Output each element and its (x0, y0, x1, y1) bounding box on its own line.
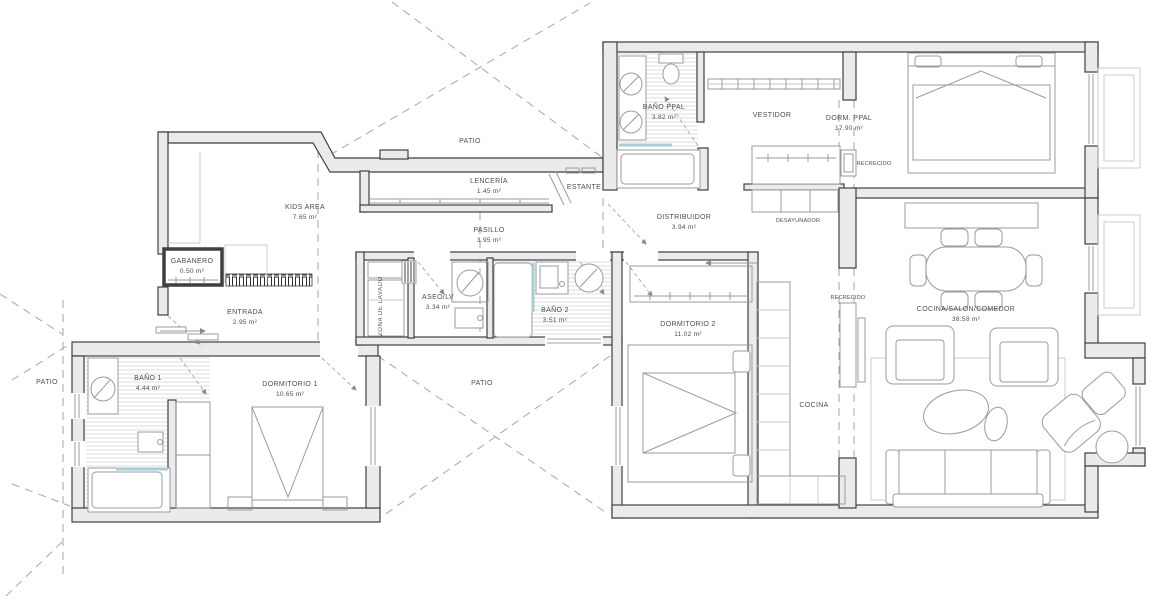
room-name: DORMITORIO 2 (660, 320, 715, 330)
vestidor-wardrobes (708, 79, 840, 212)
room-label-recrecido-dorm: RECRECIDO (857, 161, 892, 169)
room-label-dormitorio-2: DORMITORIO 2 11.02 m² (660, 320, 715, 340)
dorm-ppal-furniture (841, 53, 1055, 176)
room-name: PATIO (471, 379, 493, 389)
balconies (1098, 68, 1140, 315)
room-area: 3.82 m² (643, 113, 685, 122)
room-label-bano-1: BAÑO 1 4.44 m² (134, 374, 162, 394)
room-label-estante: ESTANTE (567, 183, 601, 193)
room-name: GABANERO (171, 257, 213, 267)
room-area: 3.51 m² (541, 316, 569, 325)
room-label-patio-left: PATIO (36, 378, 58, 388)
room-name: COCINA/SALON/COMEDOR (917, 305, 1015, 315)
room-name: COCINA (799, 401, 828, 411)
room-label-patio-top: PATIO (459, 137, 481, 147)
room-area: 1.45 m² (470, 187, 508, 196)
room-name: PASILLO (473, 226, 504, 236)
room-label-cocina: COCINA (799, 401, 828, 411)
room-label-cocina-salon: COCINA/SALON/COMEDOR 38.58 m² (917, 305, 1015, 325)
room-area: 7.65 m² (285, 213, 325, 222)
room-area: 11.02 m² (660, 330, 715, 339)
sliding-door-entrada (156, 327, 218, 340)
room-label-bano-2: BAÑO 2 3.51 m² (541, 306, 569, 326)
room-area: 17.90 m² (826, 124, 872, 133)
room-name: DORMITORIO 1 (262, 380, 317, 390)
room-area: 3.34 m² (422, 303, 454, 312)
room-label-aseo-lv: ASEO/LV 3.34 m² (422, 293, 454, 313)
room-name: BAÑO 1 (134, 374, 162, 384)
room-name: ENTRADA (227, 308, 263, 318)
room-area: 3.95 m² (473, 236, 504, 245)
room-area: 3.94 m² (657, 223, 711, 232)
dorm2-furniture (628, 266, 752, 482)
room-label-kids-area: KIDS AREA 7.65 m² (285, 203, 325, 223)
room-name: ASEO/LV (422, 293, 454, 303)
floor-plan: KIDS AREA 7.65 m² PATIO LENCERÍA 1.45 m²… (0, 0, 1167, 604)
room-name: PATIO (459, 137, 481, 147)
room-area: 0.50 m² (171, 267, 213, 276)
room-label-pasillo: PASILLO 3.95 m² (473, 226, 504, 246)
room-name: VESTIDOR (753, 111, 792, 121)
room-name: BAÑO 2 (541, 306, 569, 316)
radiator-grille (226, 274, 312, 286)
room-label-bano-ppal: BAÑO PPAL 3.82 m² (643, 103, 685, 123)
room-label-patio-mid: PATIO (471, 379, 493, 389)
room-label-distribuidor: DISTRIBUIDOR 3.94 m² (657, 213, 711, 233)
room-name: KIDS AREA (285, 203, 325, 213)
room-name: DISTRIBUIDOR (657, 213, 711, 223)
room-area: 10.65 m² (262, 390, 317, 399)
room-area: 2.95 m² (227, 318, 263, 327)
room-label-entrada: ENTRADA 2.95 m² (227, 308, 263, 328)
room-label-lenceria: LENCERÍA 1.45 m² (470, 177, 508, 197)
room-name: LENCERÍA (470, 177, 508, 187)
floor-plan-drawing (0, 0, 1167, 604)
room-area: 4.44 m² (134, 384, 162, 393)
room-name: DORM. PPAL (826, 114, 872, 124)
room-name: RECRECIDO (831, 295, 866, 303)
room-label-dormitorio-1: DORMITORIO 1 10.65 m² (262, 380, 317, 400)
room-label-vestidor: VESTIDOR (753, 111, 792, 121)
room-label-zona-lavado: ZONA DE LAVADO (378, 272, 384, 336)
dorm1-furniture (176, 402, 347, 510)
room-label-desayunador: DESAYUNADOR (776, 218, 820, 226)
room-name: ESTANTE (567, 183, 601, 193)
room-label-gabanero: GABANERO 0.50 m² (171, 257, 213, 277)
room-name: BAÑO PPAL (643, 103, 685, 113)
room-label-dorm-ppal: DORM. PPAL 17.90 m² (826, 114, 872, 134)
room-name: DESAYUNADOR (776, 218, 820, 226)
room-name: RECRECIDO (857, 161, 892, 169)
room-name: PATIO (36, 378, 58, 388)
room-area: 38.58 m² (917, 315, 1015, 324)
room-label-recrecido-cocina: RECRECIDO (831, 295, 866, 303)
